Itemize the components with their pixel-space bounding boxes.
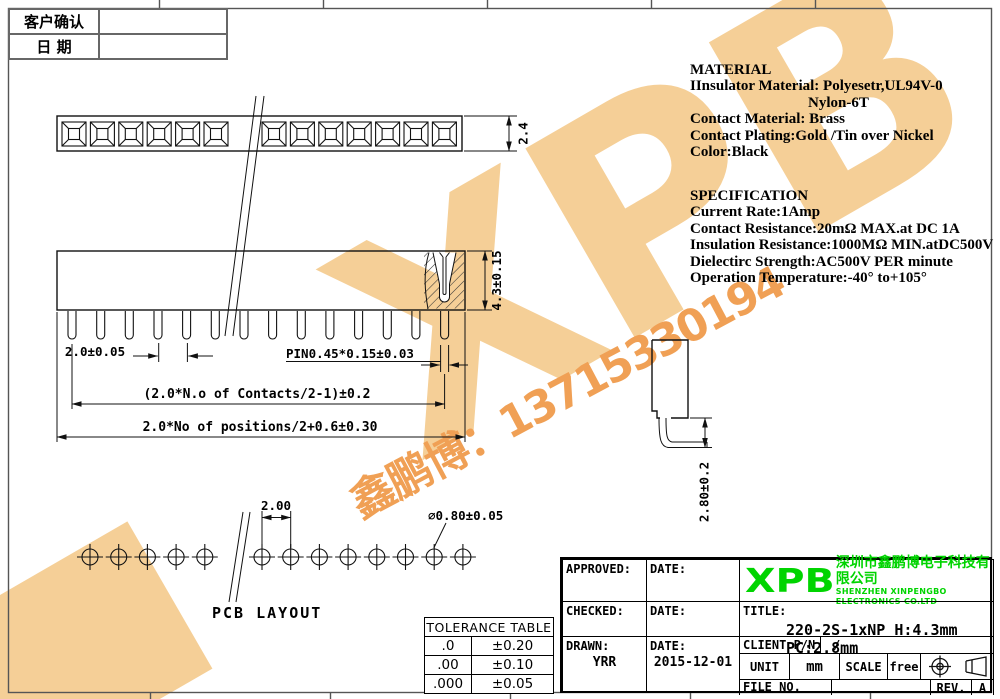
header-cell [90,122,114,146]
confirm-value [100,10,226,33]
checked-cell: CHECKED: [562,601,647,637]
header-cell [176,122,200,146]
date-label: 日 期 [10,35,100,58]
pcb-hole [364,544,390,570]
company-name-cn: 深圳市鑫鹏博电子科技有限公司 [836,555,993,587]
material-line: IInsulator Material: Polyesetr,UL94V-0 [690,78,943,94]
dim-top-height: 2.4 [516,122,531,145]
top-view: 2.4 [57,116,531,151]
tolerance-row: .00 ±0.10 [424,656,554,675]
pin [68,311,76,339]
rev-label-cell: REV. [930,679,972,695]
company-cell: XPB 深圳市鑫鹏博电子科技有限公司 SHENZHEN XINPENGBO EL… [739,559,994,602]
title-block: APPROVED: DATE: CHECKED: DATE: DRAWN: YR… [560,557,992,693]
client-pn-value-cell: / [820,636,994,654]
pin [355,311,363,339]
rev-value-cell: A [971,679,994,695]
pcb-hole [393,544,419,570]
header-cell [262,122,286,146]
pcb-hole [77,544,103,570]
pcb-hole [306,544,332,570]
tolerance-table-title: TOLERANCE TABLE [424,617,554,637]
specification-title: SPECIFICATION [690,188,993,204]
header-cell [432,122,456,146]
approved-cell: APPROVED: [562,559,647,602]
pcb-hole [335,544,361,570]
unit-value: mm [806,659,823,675]
header-cell [347,122,371,146]
header-cell [290,122,314,146]
pin [240,311,248,339]
pin [97,311,105,339]
spec-line: Operation Temperature:-40° to+105° [690,270,993,286]
header-cell [62,122,86,146]
scale-value: free [890,660,919,674]
scale-value-cell: free [887,653,921,680]
pin [125,311,133,339]
dim-tail: 2.80±0.2 [697,462,712,522]
confirm-label: 客户确认 [10,10,100,33]
break-line [225,96,264,336]
material-line: Contact Plating:Gold /Tin over Nickel [690,128,943,144]
dim-body-height: 4.3±0.15 [489,250,504,310]
pin [183,311,191,339]
tolerance-table: TOLERANCE TABLE .0 ±0.20 .00 ±0.10 .000 … [424,617,554,694]
file-no-value-cell [831,679,931,695]
unit-value-cell: mm [789,653,840,680]
confirm-row: 客户确认 [10,10,226,33]
unit-label-cell: UNIT [739,653,790,680]
tolerance-row: .000 ±0.05 [424,675,554,694]
pin [211,311,219,339]
pin [383,311,391,339]
header-cell [147,122,171,146]
pin [441,311,449,339]
header-cell [404,122,428,146]
date-value [100,35,226,58]
dim-contacts-span: (2.0*N.o of Contacts/2-1)±0.2 [144,387,371,402]
revision: A [979,681,986,695]
tolerance-row: .0 ±0.20 [424,637,554,656]
dim-pcb-pitch: 2.00 [261,498,291,513]
pin [269,311,277,339]
file-no-label-cell: FILE NO. [739,679,832,695]
drawn-by: YRR [563,655,646,670]
header-cell [204,122,228,146]
checked-date-cell: DATE: [646,601,740,637]
material-line: Color:Black [690,144,943,160]
pin [297,311,305,339]
projection-symbol-cell [920,653,994,680]
client-pn-label-cell: CLIENT P/N [739,636,821,654]
header-cell [119,122,143,146]
pcb-hole [163,544,189,570]
pin [326,311,334,339]
material-line: Nylon-6T [690,95,943,111]
material-line: Contact Material: Brass [690,111,943,127]
drawn-cell: DRAWN: YRR [562,636,647,691]
pcb-layout-label: PCB LAYOUT [212,604,322,622]
title-cell: TITLE: 220-2S-1xNP H:4.3mm PC:2.8mm [739,601,994,637]
pcb-hole [450,544,476,570]
scale-label-cell: SCALE [839,653,888,680]
pin [412,311,420,339]
approved-date-cell: DATE: [646,559,740,602]
first-angle-projection-icon [921,654,993,679]
pcb-hole [192,544,218,570]
pcb-hole [106,544,132,570]
dim-pcb-hole: ∅0.80±0.05 [428,508,503,523]
spec-line: Dielectirc Strength:AC500V PER minute [690,254,993,270]
date-row: 日 期 [10,33,226,58]
dim-pitch: 2.0±0.05 [65,344,125,359]
pcb-layout: 2.00 ∅0.80±0.05 PCB LAYOUT [77,498,503,622]
material-title: MATERIAL [690,62,943,78]
end-view: 2.80±0.2 [652,340,712,522]
specification-section: SPECIFICATION Current Rate:1Amp Contact … [690,188,993,286]
material-section: MATERIAL IInsulator Material: Polyesetr,… [690,62,943,160]
header-cell [376,122,400,146]
drawn-date: 2015-12-01 [647,655,739,670]
drawn-date-cell: DATE: 2015-12-01 [646,636,740,691]
front-view: 4.3±0.15 2.0±0.05 PIN0.45*0.15±0.03 (2.0… [57,250,504,442]
dim-total-length: 2.0*No of positions/2+0.6±0.30 [143,420,378,435]
pcb-break-line [229,512,250,602]
spec-line: Contact Resistance:20mΩ MAX.at DC 1A [690,221,993,237]
spec-line: Insulation Resistance:1000MΩ MIN.atDC500… [690,237,993,253]
drawing-sheet: XPB 鑫鹏博：13715330194 2.4 [0,0,1000,699]
customer-confirm-table: 客户确认 日 期 [8,8,228,60]
pin [154,311,162,339]
client-pn: / [821,637,993,654]
company-logo: XPB [745,564,835,597]
pcb-hole [134,544,160,570]
header-cell [319,122,343,146]
dim-pin: PIN0.45*0.15±0.03 [286,346,414,361]
spec-line: Current Rate:1Amp [690,204,993,220]
